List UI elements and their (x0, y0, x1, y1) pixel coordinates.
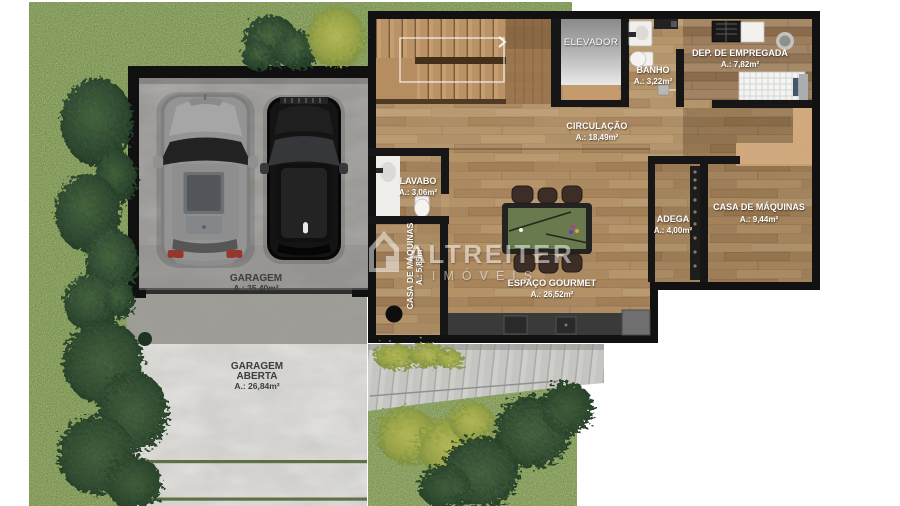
svg-text:A.: 3,06m²: A.: 3,06m² (399, 188, 438, 197)
svg-text:A.: 4,00m²: A.: 4,00m² (654, 226, 693, 235)
svg-text:A.: 18,49m²: A.: 18,49m² (576, 133, 619, 142)
svg-text:ELEVADOR: ELEVADOR (564, 37, 618, 48)
svg-text:A.: 26,52m²: A.: 26,52m² (531, 290, 574, 299)
svg-text:CIRCULAÇÃO: CIRCULAÇÃO (566, 121, 627, 131)
svg-text:A.: 35,40m²: A.: 35,40m² (233, 283, 279, 293)
svg-text:DEP. DE EMPREGADA: DEP. DE EMPREGADA (692, 48, 788, 58)
svg-text:ALTREITER: ALTREITER (407, 239, 574, 269)
svg-text:A.: 26,84m²: A.: 26,84m² (234, 381, 280, 391)
svg-text:A.: 9,44m²: A.: 9,44m² (740, 215, 779, 224)
svg-text:ADEGA: ADEGA (657, 214, 690, 224)
svg-text:LAVABO: LAVABO (400, 176, 437, 186)
svg-text:BANHO: BANHO (637, 65, 670, 75)
svg-text:IMÓVEIS: IMÓVEIS (432, 268, 540, 283)
svg-text:A.: 7,82m²: A.: 7,82m² (721, 60, 760, 69)
svg-text:CASA DE MÁQUINAS: CASA DE MÁQUINAS (713, 202, 805, 212)
